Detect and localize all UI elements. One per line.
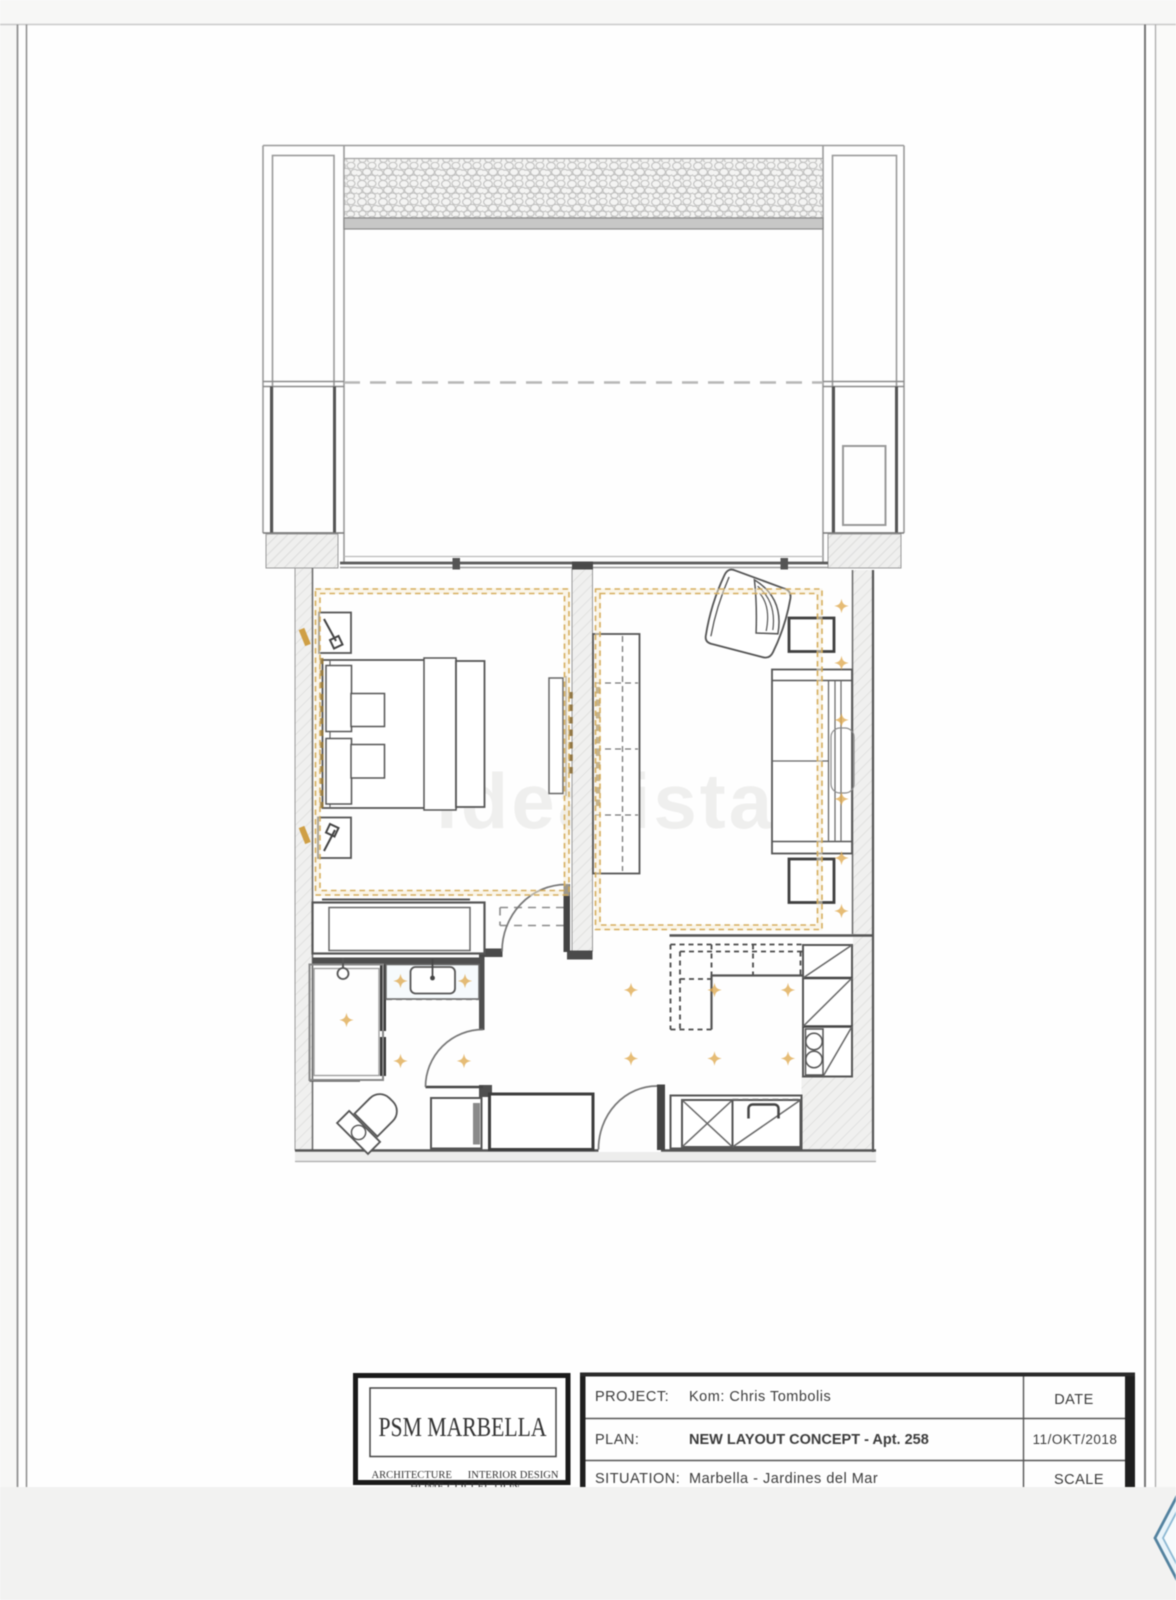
svg-text:ARCHITECTURE INTERIOR DES: ARCHITECTURE INTERIOR DESIGN (372, 1470, 559, 1481)
svg-text:SCALE: SCALE (1054, 1472, 1104, 1488)
svg-text:NEW LAYOUT CONCEPT - Apt. 25: NEW LAYOUT CONCEPT - Apt. 258 (689, 1432, 929, 1448)
svg-text:SITUATION:: SITUATION: (595, 1471, 680, 1487)
svg-text:11/OKT/2018: 11/OKT/2018 (1033, 1432, 1118, 1447)
svg-text:PLAN:: PLAN: (595, 1432, 639, 1448)
svg-text:DATE: DATE (1054, 1392, 1094, 1408)
svg-text:PROJECT:: PROJECT: (595, 1389, 669, 1405)
svg-text:Kom: Chris Tombolis: Kom: Chris Tombolis (689, 1389, 831, 1405)
svg-text:PSM MARBELLA: PSM MARBELLA (379, 1412, 547, 1442)
svg-text:Marbella - Jardines del Mar: Marbella - Jardines del Mar (689, 1471, 878, 1487)
